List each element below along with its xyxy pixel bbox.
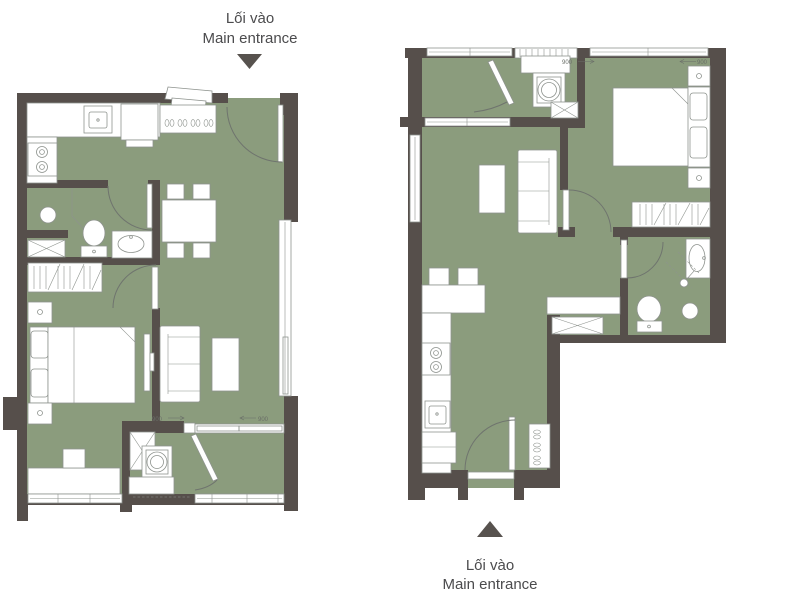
bar-stool-icon — [458, 268, 478, 285]
door-leaf — [152, 267, 158, 309]
door-threshold — [184, 423, 195, 433]
entrance-label-top: Lối vào Main entrance — [202, 10, 297, 69]
sliding-door-icon — [195, 424, 284, 433]
dining-chair-icon — [193, 243, 210, 258]
dimension-text: 900 — [152, 417, 163, 423]
dimension-text: 900 — [562, 60, 573, 66]
coffee-table-icon — [479, 165, 505, 213]
floor-plan-drawing: 900 900 — [0, 0, 800, 602]
entrance-label-en: Main entrance — [202, 30, 297, 47]
entrance-label-vi: Lối vào — [466, 557, 514, 574]
window-icon — [425, 118, 510, 126]
shower-drain-icon — [682, 303, 698, 319]
door-leaf — [563, 190, 569, 230]
mattress — [48, 327, 135, 403]
plan-right: 900 900 — [400, 48, 726, 500]
storage-cabinet-icon — [551, 102, 578, 118]
fridge-icon — [121, 104, 158, 147]
dimension-text: 900 — [258, 417, 269, 423]
dimension-text: 900 — [697, 60, 708, 66]
entrance-arrow-up-icon — [477, 521, 503, 537]
nightstand-icon — [28, 403, 52, 424]
coffee-table-icon — [212, 338, 239, 391]
floor-plan-canvas: 900 900 — [0, 0, 800, 602]
sofa-icon — [160, 326, 200, 402]
door-leaf — [509, 417, 515, 470]
door-threshold — [468, 472, 514, 479]
toilet-icon — [81, 220, 107, 257]
entrance-arrow-down-icon — [237, 54, 262, 69]
window-icon — [195, 494, 284, 503]
window-icon — [28, 494, 122, 503]
fridge-icon — [422, 432, 456, 463]
wardrobe-icon — [28, 263, 102, 292]
window-icon — [590, 48, 708, 56]
laundry-counter-icon — [129, 477, 174, 494]
window-icon — [427, 48, 512, 56]
desk-icon — [28, 468, 120, 494]
wardrobe-icon — [632, 202, 710, 227]
hall-counter-icon — [547, 297, 620, 314]
dining-table-icon — [162, 200, 216, 242]
shoe-cabinet-icon — [529, 424, 550, 468]
vanity-basin-icon — [112, 231, 152, 258]
nightstand-icon — [28, 302, 52, 323]
washing-machine-icon — [142, 446, 172, 478]
storage-cabinet-icon — [552, 317, 603, 334]
sink-icon — [425, 401, 450, 428]
stool-icon — [63, 449, 85, 468]
nightstand-icon — [688, 168, 710, 188]
sink-icon — [84, 106, 112, 133]
mattress — [613, 88, 690, 166]
dining-chair-icon — [193, 184, 210, 199]
stove-icon — [28, 143, 57, 176]
shoe-cabinet-icon — [160, 105, 216, 133]
shower-drain-icon — [40, 207, 56, 223]
window-icon — [410, 135, 420, 222]
dining-chair-icon — [167, 184, 184, 199]
door-leaf — [278, 105, 283, 162]
bathroom-door-leaf — [147, 184, 152, 228]
entrance-label-en: Main entrance — [442, 576, 537, 593]
pillow — [31, 331, 48, 358]
window-icon — [279, 220, 291, 396]
bathroom-door-leaf — [621, 240, 627, 278]
storage-cabinet-icon — [28, 240, 65, 257]
entrance-label-bottom: Lối vào Main entrance — [442, 521, 537, 593]
stove-icon — [422, 343, 450, 375]
dining-chair-icon — [167, 243, 184, 258]
pillow — [690, 93, 707, 120]
bar-stool-icon — [429, 268, 449, 285]
entrance-label-vi: Lối vào — [226, 10, 274, 27]
bar-counter-icon — [422, 285, 485, 313]
nightstand-icon — [688, 66, 710, 86]
sofa-icon — [518, 150, 557, 233]
toilet-icon — [637, 296, 662, 332]
pillow — [690, 127, 707, 158]
plan-left: 900 900 — [3, 87, 298, 521]
pillow — [31, 369, 48, 397]
